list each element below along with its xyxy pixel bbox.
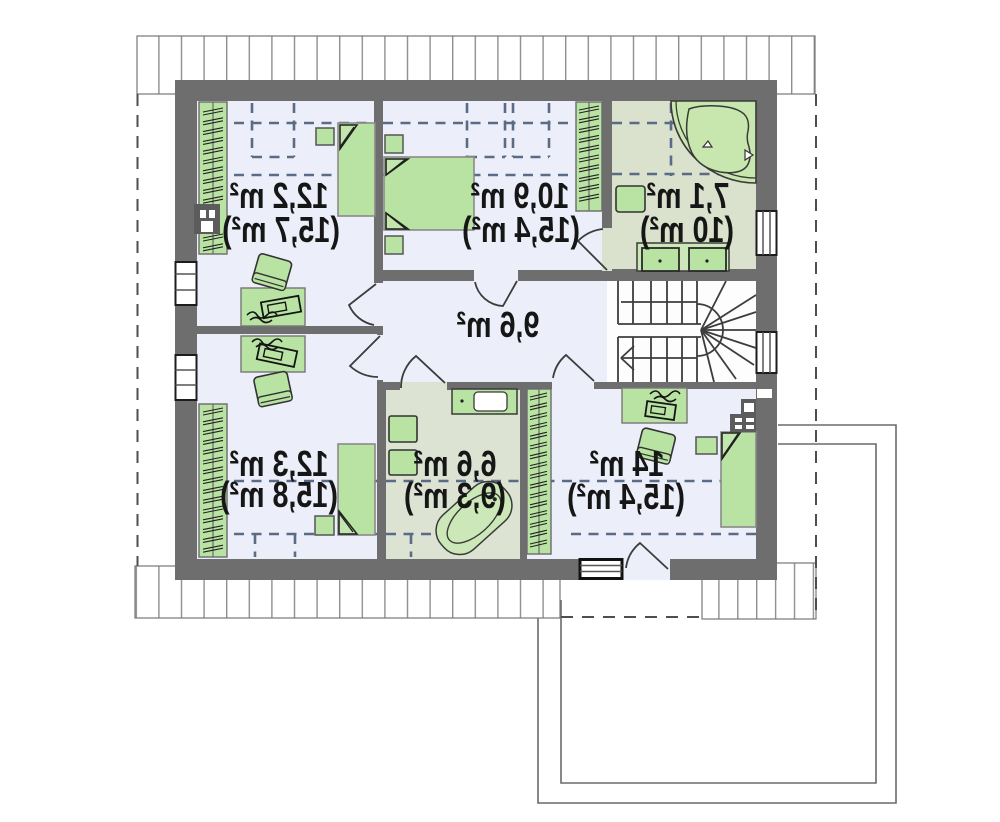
svg-text:(9,3 m²): (9,3 m²) xyxy=(404,475,506,516)
svg-text:(15,7 m²): (15,7 m²) xyxy=(222,209,340,250)
svg-text:9,6 m²: 9,6 m² xyxy=(456,304,539,345)
svg-text:(15,4 m²): (15,4 m²) xyxy=(567,476,685,517)
svg-text:(15,4 m²): (15,4 m²) xyxy=(462,209,580,250)
svg-text:(15,8 m²): (15,8 m²) xyxy=(220,474,338,515)
svg-text:(10 m²): (10 m²) xyxy=(640,209,734,250)
